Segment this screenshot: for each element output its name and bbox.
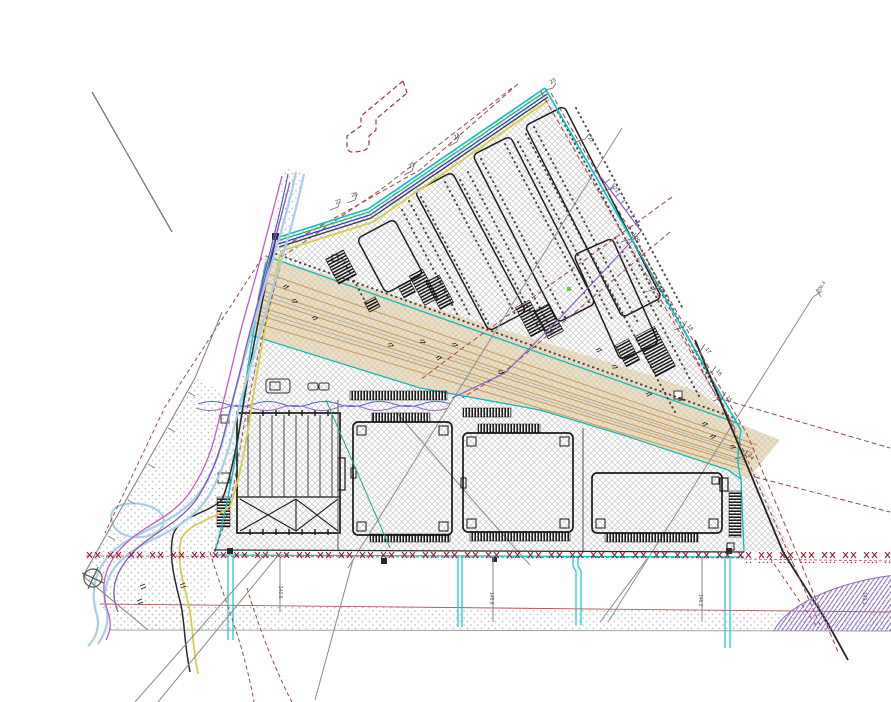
survey-line-topleft	[92, 92, 172, 232]
cyan-drops	[228, 556, 730, 648]
elevation-label: 146.2	[697, 594, 703, 607]
point-label: 27	[335, 198, 343, 206]
parking-comb-right	[729, 491, 741, 537]
site-plan-page: 27 26 25 24 23 22 21 20 19 18 17 16 15 1…	[0, 0, 891, 702]
point-label: 18	[685, 324, 693, 332]
distance-label: 206.4	[816, 280, 828, 294]
green-marker	[567, 287, 571, 291]
west-wedge	[83, 378, 240, 628]
red-road-hook	[347, 81, 407, 152]
point-label: 22	[586, 136, 594, 144]
elevation-label: 145.8	[488, 592, 494, 605]
elevation-label: 140.6	[277, 586, 283, 599]
point-label: 26	[351, 191, 359, 199]
offsite-lines	[92, 81, 407, 232]
point-label: 16	[714, 369, 722, 377]
elevation-label: 143.1	[861, 592, 867, 605]
purple-hatch-area	[763, 558, 891, 692]
point-label: 23	[549, 77, 557, 85]
site-plan-drawing: 27 26 25 24 23 22 21 20 19 18 17 16 15 1…	[0, 0, 891, 702]
point-label: 24	[453, 132, 461, 140]
point-label: 17	[703, 347, 711, 355]
point-label: 25	[408, 161, 416, 169]
